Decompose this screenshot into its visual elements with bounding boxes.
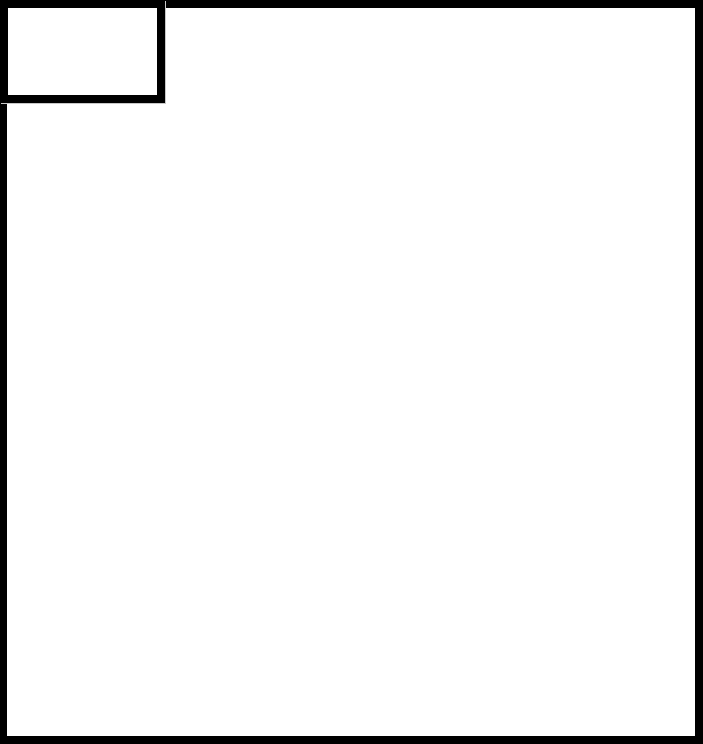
outer-frame (0, 0, 703, 744)
inset-box (0, 0, 165, 103)
canvas (0, 0, 703, 744)
